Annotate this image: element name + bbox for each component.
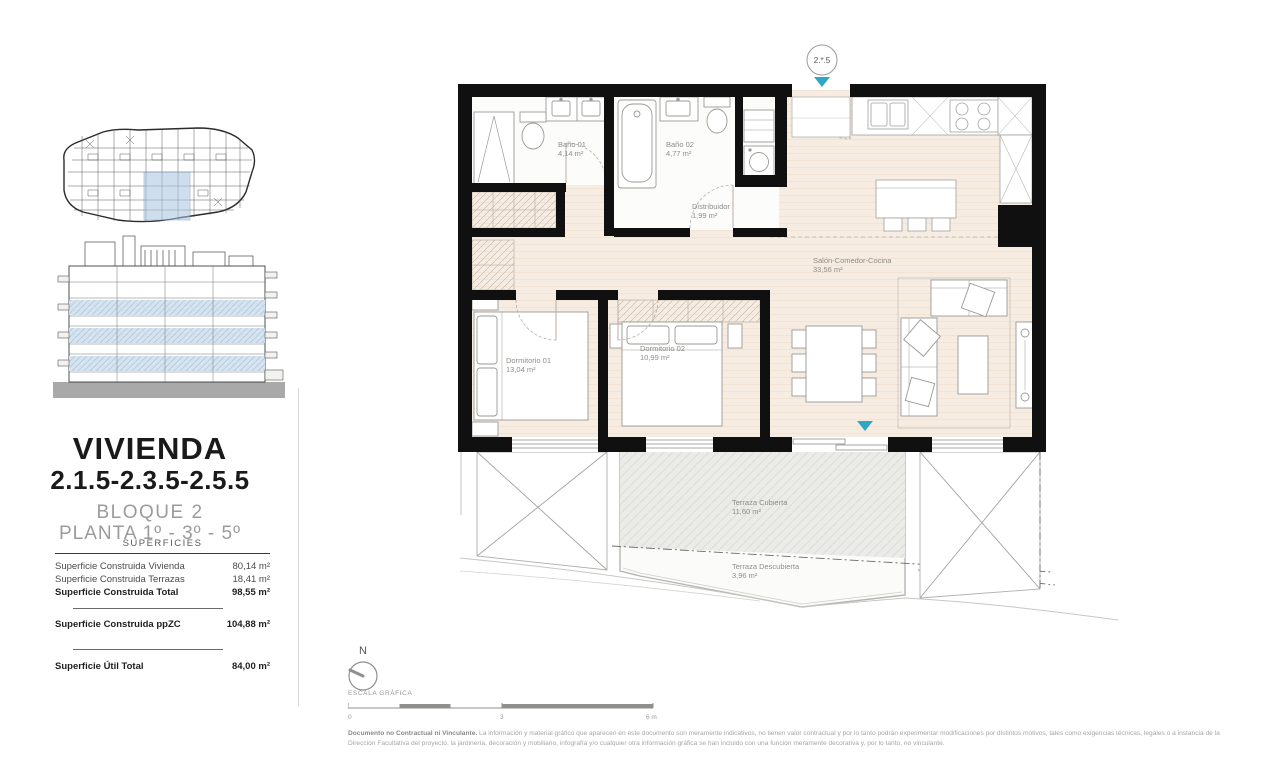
unit-marker-label: 2.*.5: [814, 56, 831, 65]
disclaimer: Documento no Contractual ni Vinculante. …: [348, 729, 1241, 748]
scale-tick-3: 3: [500, 714, 504, 721]
row-label: Superficie Construida Total: [55, 586, 178, 599]
row-label: Superficie Construida Terrazas: [55, 573, 185, 586]
block-label: BLOQUE 2: [0, 502, 300, 523]
scale-label: ESCALA GRÁFICA: [348, 690, 412, 697]
row-value: 104,88 m²: [227, 618, 270, 631]
row-label: Superficie Construida ppZC: [55, 618, 181, 631]
surfaces-table: SUPERFICIES Superficie Construida Vivien…: [55, 538, 270, 673]
svg-text:4,14 m²: 4,14 m²: [558, 149, 584, 158]
toilet: [520, 112, 546, 122]
room-label-bano2: Baño 02 4,77 m²: [666, 140, 694, 158]
table-row: Superficie Construida ppZC 104,88 m²: [55, 618, 270, 631]
svg-text:Salón-Comedor-Cocina: Salón-Comedor-Cocina: [813, 256, 892, 265]
title-block: VIVIENDA 2.1.5-2.3.5-2.5.5 BLOQUE 2 PLAN…: [0, 432, 300, 544]
floor-plan: 2.*.5 Baño 01 4,14 m² Baño 02 4,77 m² Di…: [450, 30, 1120, 640]
table-row: Superficie Útil Total 84,00 m²: [55, 660, 270, 673]
scale-tick-6: 6 m: [646, 714, 657, 721]
washing-machine: [744, 146, 774, 178]
chair: [862, 354, 876, 372]
chair: [792, 378, 806, 396]
compass-needle: [350, 670, 363, 676]
svg-text:Dormitorio 02: Dormitorio 02: [640, 344, 685, 353]
pillow: [477, 316, 497, 364]
table-divider: [73, 608, 223, 609]
svg-text:Terraza Cubierta: Terraza Cubierta: [732, 498, 788, 507]
window-bedroom1: [512, 437, 598, 452]
dining-set: [792, 326, 876, 402]
disclaimer-lead: Documento no Contractual ni Vinculante.: [348, 730, 477, 737]
svg-text:Baño 02: Baño 02: [666, 140, 694, 149]
svg-text:3,96 m²: 3,96 m²: [732, 571, 758, 580]
kitchen-island: [876, 180, 956, 218]
window-living: [932, 437, 1003, 452]
surfaces-header: SUPERFICIES: [55, 538, 270, 554]
svg-text:Dormitorio 01: Dormitorio 01: [506, 356, 551, 365]
toilet: [704, 97, 730, 107]
svg-text:10,99 m²: 10,99 m²: [640, 353, 670, 362]
elevation-ground: [53, 382, 285, 398]
scale-bar: 0 3 6 m: [348, 700, 660, 724]
north-label: N: [359, 645, 367, 657]
entrance-arrow-icon: [814, 77, 830, 87]
bathtub: [618, 100, 656, 188]
nightstand: [610, 324, 622, 348]
row-label: Superficie Construida Vivienda: [55, 560, 185, 573]
row-value: 84,00 m²: [232, 660, 270, 673]
chair: [792, 354, 806, 372]
unit-title: VIVIENDA: [0, 432, 300, 465]
chair: [862, 330, 876, 348]
bedroom2-furniture: [610, 322, 742, 426]
row-value: 80,14 m²: [233, 560, 271, 573]
window-bedroom2: [646, 437, 713, 452]
stool: [884, 218, 902, 231]
table-row: Superficie Construida Vivienda 80,14 m²: [55, 560, 270, 573]
row-value: 18,41 m²: [233, 573, 271, 586]
svg-text:11,60 m²: 11,60 m²: [732, 507, 762, 516]
nightstand: [728, 324, 742, 348]
unit-numbers: 2.1.5-2.3.5-2.5.5: [0, 465, 300, 495]
neighbour-terrace-right: [920, 452, 1040, 598]
elevation-floor-bands: [69, 300, 265, 371]
disclaimer-text: La información y material gráfico que ap…: [348, 730, 1220, 747]
svg-text:Distribuidor: Distribuidor: [692, 202, 730, 211]
elevation-roof: [85, 236, 253, 268]
keyplan-unit-highlight: [144, 172, 190, 220]
svg-text:4,77 m²: 4,77 m²: [666, 149, 692, 158]
dining-table: [806, 326, 862, 402]
room-label-bano1: Baño 01 4,14 m²: [558, 140, 586, 158]
entrance-landing: [792, 97, 850, 137]
row-value: 98,55 m²: [232, 586, 270, 599]
building-elevation: [45, 230, 290, 400]
svg-text:Terraza Descubierta: Terraza Descubierta: [732, 562, 800, 571]
coffee-table: [958, 336, 988, 394]
site-key-plan: [58, 120, 258, 238]
scale-tick-0: 0: [348, 714, 352, 721]
table-divider: [73, 649, 223, 650]
sliding-door-living: [792, 437, 888, 452]
pillow: [675, 326, 717, 344]
neighbour-terrace-left: [477, 452, 607, 570]
pillow: [477, 368, 497, 416]
table-row: Superficie Construida Total 98,55 m²: [55, 586, 270, 599]
stool: [908, 218, 926, 231]
row-label: Superficie Útil Total: [55, 660, 144, 673]
panel-divider: [298, 388, 299, 706]
chair: [792, 330, 806, 348]
stool: [932, 218, 950, 231]
pillow: [627, 326, 669, 344]
plan-sheet: VIVIENDA 2.1.5-2.3.5-2.5.5 BLOQUE 2 PLAN…: [0, 0, 1280, 768]
svg-text:1,99 m²: 1,99 m²: [692, 211, 718, 220]
chair: [862, 378, 876, 396]
svg-text:33,56 m²: 33,56 m²: [813, 265, 843, 274]
svg-text:13,04 m²: 13,04 m²: [506, 365, 536, 374]
svg-text:Baño 01: Baño 01: [558, 140, 586, 149]
table-row: Superficie Construida Terrazas 18,41 m²: [55, 573, 270, 586]
laundry-shelf: [744, 110, 774, 142]
nightstand: [472, 422, 498, 436]
